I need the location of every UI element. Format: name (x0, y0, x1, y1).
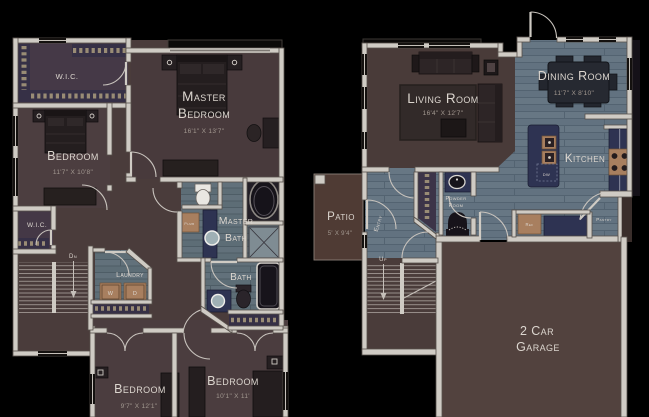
svg-text:16'1" X 13'7": 16'1" X 13'7" (184, 128, 225, 135)
svg-text:Powder: Powder (445, 196, 466, 202)
svg-text:Dining Room: Dining Room (538, 69, 610, 83)
svg-text:2 Car: 2 Car (520, 324, 554, 338)
svg-text:Patio: Patio (327, 211, 355, 223)
svg-text:W.I.C.: W.I.C. (56, 72, 79, 81)
svg-text:Bath: Bath (230, 272, 252, 283)
svg-text:Garage: Garage (516, 340, 560, 354)
svg-text:Master: Master (219, 215, 254, 227)
svg-text:9'7" X 12'1": 9'7" X 12'1" (121, 403, 158, 410)
svg-text:Bedroom: Bedroom (114, 382, 166, 396)
svg-text:Plmb: Plmb (184, 222, 194, 226)
svg-text:16'4" X 12'7": 16'4" X 12'7" (423, 110, 464, 117)
svg-text:Kitchen: Kitchen (565, 153, 605, 165)
svg-text:10'1" X 11': 10'1" X 11' (216, 393, 250, 400)
svg-text:Bath: Bath (225, 232, 247, 244)
svg-text:Bedroom: Bedroom (178, 106, 230, 121)
svg-text:5' X 9'4": 5' X 9'4" (328, 231, 352, 237)
svg-text:11'7" X 8'10": 11'7" X 8'10" (554, 90, 595, 97)
svg-text:Pantry: Pantry (596, 217, 612, 222)
svg-text:Ref: Ref (525, 222, 533, 227)
svg-text:Room: Room (449, 203, 464, 209)
svg-text:W.I.C.: W.I.C. (27, 222, 47, 229)
svg-text:Living Room: Living Room (407, 91, 478, 106)
svg-text:Bedroom: Bedroom (207, 374, 259, 388)
svg-text:Master: Master (182, 89, 226, 104)
svg-text:Laundry: Laundry (116, 272, 144, 279)
svg-text:Up: Up (379, 257, 387, 263)
svg-text:W: W (108, 291, 114, 297)
svg-text:Bedroom: Bedroom (47, 149, 99, 163)
svg-text:Dn: Dn (69, 254, 77, 260)
svg-text:D: D (133, 291, 137, 297)
svg-text:11'7" X 10'8": 11'7" X 10'8" (53, 169, 94, 176)
svg-text:DW: DW (543, 172, 550, 177)
